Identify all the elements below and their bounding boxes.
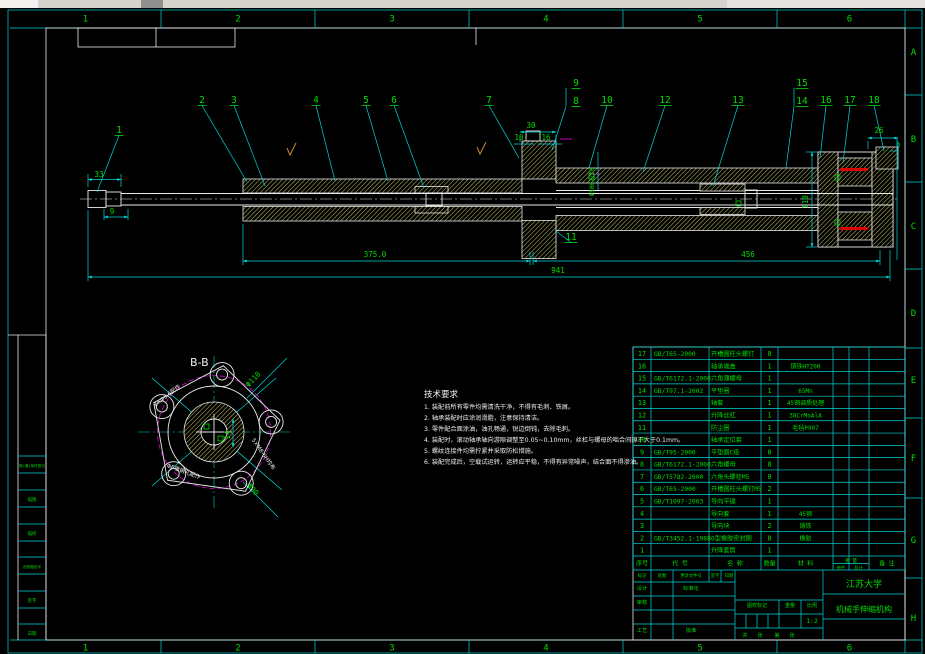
balloon-leader (316, 106, 335, 182)
balloon-leader (820, 106, 826, 159)
header-cell: 序号 (636, 560, 648, 568)
cell-part-name: 轴套 (711, 399, 723, 407)
dimension-text: 10 (514, 133, 524, 142)
balloon-leader (489, 106, 519, 159)
coupling-detail (426, 193, 442, 206)
sheet-border (8, 10, 922, 653)
balloon-number: 1 (116, 125, 122, 136)
role-label: 标准化 (683, 584, 700, 592)
cell-qty: 1 (767, 411, 771, 419)
cell-part-name: 导向套 (711, 510, 730, 518)
tech-note-line: 6. 装配完成后，空载试运转，运转应平稳，不得有异常噪声，结合面不得渗油。 (424, 458, 642, 466)
ruler-zone-number-top: 4 (543, 15, 548, 25)
balloon-number: 9 (573, 78, 579, 89)
assembly-main-view (80, 131, 898, 260)
seal-ring-top (840, 168, 868, 171)
tube1-wall-bottom (243, 207, 522, 222)
cell-standard-code: GB/T65-2000 (654, 486, 696, 493)
cell-part-name: 轴承定位套 (711, 436, 742, 444)
balloon-leader (552, 107, 566, 151)
cell-standard-code: GB/T6172.1-2000 (654, 462, 711, 469)
balloon-number: 12 (659, 95, 670, 106)
cell-part-no: 7 (640, 473, 644, 481)
balloon-leader (843, 106, 850, 164)
cell-part-no: 1 (640, 547, 644, 555)
balloon-leader (786, 107, 794, 169)
dimension-text: 16 (541, 133, 551, 142)
stamp-header: 重量 (785, 602, 795, 609)
ruler-zone-number-bottom: 3 (389, 644, 394, 654)
section-label: B-B (190, 356, 209, 369)
dimension-text: 30 (526, 121, 536, 130)
header-weight-sub: 总计 (854, 564, 862, 571)
balloon-number: 5 (363, 95, 369, 106)
dimension-text: Φ50H7/f6 (589, 167, 596, 196)
cell-qty: 8 (767, 448, 771, 456)
role-label: 工艺 (637, 627, 648, 634)
cell-part-no: 11 (638, 424, 646, 432)
cell-part-name: 导向块 (711, 522, 730, 530)
header-weight: 重 量 (845, 557, 857, 564)
cell-material: 橡胶 (799, 534, 811, 542)
cell-part-no: 6 (640, 485, 644, 493)
revision-header: 处数 (658, 572, 667, 579)
cell-part-name: 平垫圈 (711, 387, 730, 395)
flange-upper (522, 141, 556, 179)
role-label: 审核 (637, 598, 648, 606)
cell-material: 铸铁HT200 (790, 362, 820, 370)
cell-part-name: 开槽圆柱头螺钉M5 (711, 485, 762, 493)
dimension-text: 33 (94, 170, 103, 179)
cell-part-name: 六角薄螺母 (711, 375, 742, 383)
cell-qty: 8 (767, 461, 771, 469)
sheet-label: 张 (757, 632, 762, 639)
nut-top (415, 187, 448, 194)
revision-header: 标记 (638, 572, 647, 579)
cell-standard-code: GB/T5782-2000 (654, 474, 703, 481)
header-cell: 材 料 (798, 560, 814, 568)
notes-title: 技术要求 (424, 389, 459, 400)
cell-qty: 1 (767, 510, 771, 518)
balloon-number: 7 (486, 95, 492, 106)
cell-qty: 1 (767, 362, 771, 370)
balloon-number: 10 (601, 95, 613, 106)
cell-part-no: 2 (640, 534, 644, 542)
bolt-hole (266, 416, 277, 427)
ruler-zone-letter: G (911, 536, 916, 546)
cell-material: 65Mn (798, 388, 813, 395)
drawing-sheet: B-B 技术要求 江苏大学 机械手伸缩机构 1:2 123456123456AB… (0, 0, 925, 654)
header-cell: 数量 (763, 560, 775, 568)
cell-material: 38CrMoAlA (789, 412, 822, 419)
ruler-zone-letter: B (911, 135, 916, 145)
dimension-text: 26 (874, 126, 884, 135)
cell-qty: 1 (767, 498, 771, 506)
dimension-text: 9 (110, 207, 115, 216)
balloon-leader (394, 106, 424, 189)
cad-application-canvas: B-B 技术要求 江苏大学 机械手伸缩机构 1:2 123456123456AB… (0, 0, 925, 654)
ruler-zone-letter: D (911, 309, 916, 319)
tech-note-line: 5. 螺纹连接件均需拧紧并采取防松措施。 (424, 447, 537, 455)
cell-part-no: 4 (640, 510, 644, 518)
cell-qty: 2 (767, 522, 771, 530)
outer-border (8, 10, 922, 653)
ruler-zone-letter: E (911, 376, 916, 386)
sheet-label: 张 (789, 632, 794, 639)
ruler-zone-letter: H (911, 614, 916, 624)
cell-part-no: 5 (640, 498, 644, 506)
ruler-zone-number-top: 2 (235, 15, 240, 25)
balloon-number: 17 (844, 95, 855, 106)
cell-standard-code: GB/T1097-2003 (654, 499, 703, 506)
tech-note-line: 3. 零件配合面涂油，油孔畅通，锐边倒钝，去除毛刺。 (424, 425, 574, 433)
cell-part-no: 3 (640, 522, 644, 530)
revision-header: 日期 (725, 573, 734, 579)
surface-finish-icon (477, 142, 486, 154)
section-view-bb (138, 356, 290, 508)
balloon-number: 11 (565, 232, 577, 243)
balloon-number: 6 (391, 95, 397, 106)
cell-part-no: 14 (638, 387, 646, 395)
balloon-number: 2 (199, 95, 205, 106)
balloon-leader (366, 106, 388, 182)
binding-strip-label: 签字 (28, 597, 37, 604)
binding-strip-label: 借(通)用件登记 (19, 463, 45, 468)
ruler-zone-letter: F (911, 454, 916, 464)
ruler-zone-number-top: 1 (83, 15, 88, 25)
cell-qty: 1 (767, 547, 771, 555)
stamp-header: 图样标记 (747, 602, 767, 609)
inner-nut-bottom (700, 208, 745, 215)
cell-part-name: 开槽圆柱头螺钉 (711, 350, 754, 358)
surface-finish-icon (287, 143, 296, 155)
ruler-zone-number-top: 3 (389, 15, 394, 25)
drawing-title: 机械手伸缩机构 (836, 604, 892, 614)
balloon-number: 13 (732, 95, 743, 106)
role-label: 设计 (637, 584, 648, 592)
cell-part-no: 15 (638, 375, 646, 383)
binding-strip-label: 描校 (28, 530, 37, 537)
cell-part-no: 9 (640, 448, 644, 456)
cell-part-name: 导向平键 (711, 498, 736, 506)
end-cap-body-bottom (838, 212, 872, 240)
cell-part-name: 防尘圈 (711, 424, 730, 432)
dimension-text: 7 (897, 143, 901, 150)
header-weight-sub: 单件 (837, 564, 845, 571)
header-cell: 名 称 (727, 560, 743, 568)
inner-frame (46, 28, 905, 640)
ruler-zone-letter: A (911, 48, 917, 58)
cell-standard-code: GB/T97.1-2002 (654, 388, 703, 395)
cell-qty: 8 (767, 473, 771, 481)
ruler-zone-number-bottom: 1 (83, 644, 88, 654)
binding-strip-label: 旧底图总号 (23, 564, 41, 569)
cell-part-no: 13 (638, 399, 646, 407)
dimension-text: 375.0 (364, 250, 387, 259)
seal-ring-bottom (840, 227, 868, 230)
nut-bottom (415, 207, 448, 214)
tube1-wall-top (243, 179, 522, 193)
flange-lower (522, 221, 556, 259)
cell-part-no: 17 (638, 350, 646, 358)
cell-part-name: O型橡胶密封圈 (711, 534, 752, 542)
end-cap-plate (818, 152, 838, 247)
ruler-zone-number-top: 6 (847, 15, 852, 25)
cell-qty: 1 (767, 375, 771, 383)
cell-qty: 1 (767, 387, 771, 395)
ruler-zone-number-bottom: 4 (543, 644, 548, 654)
balloon-number: 8 (573, 96, 579, 107)
cell-part-no: 16 (638, 362, 646, 370)
cell-part-name: 六角螺母 (711, 461, 736, 469)
binding-strip-label: 描图 (28, 496, 37, 503)
balloon-number: 14 (796, 96, 808, 107)
role-label: 批准 (686, 626, 697, 634)
balloon-leader (202, 106, 247, 183)
tech-note-line: 2. 轴承装配时应涂润滑脂，注意保持清洁。 (424, 414, 543, 422)
cell-part-no: 10 (638, 436, 646, 444)
balloon-number: 4 (313, 95, 319, 106)
dimension-text: 14 (223, 430, 232, 440)
reference-box (78, 28, 235, 47)
tech-note-line: 1. 装配前所有零件均需清洗干净，不得有毛刺、铁屑。 (424, 403, 574, 411)
balloon-number: 3 (231, 95, 237, 106)
header-cell: 代 号 (672, 560, 688, 568)
dimension-text: 941 (551, 266, 565, 275)
ruler-zone-number-bottom: 5 (697, 644, 702, 654)
cell-qty: 1 (767, 399, 771, 407)
cell-qty: 1 (767, 436, 771, 444)
dimension-text: 456 (741, 250, 755, 259)
cell-part-no: 12 (638, 411, 646, 419)
balloon-leader (97, 136, 119, 193)
binding-strip-label: 日期 (28, 631, 37, 637)
sheet-label: 共 (742, 632, 747, 639)
cell-part-name: 升降套筒 (711, 547, 736, 555)
cell-material: 45钢调质处理 (787, 399, 824, 407)
cell-part-name: 平垫圈C级 (711, 448, 739, 456)
tube2-wall-bottom (556, 216, 818, 231)
cell-standard-code: GB/T95-2000 (654, 449, 696, 456)
cell-material: 铸铁 (799, 522, 811, 530)
balloon-number: 18 (868, 95, 880, 106)
cell-material: 毛毡P907 (792, 424, 819, 432)
cell-qty: 8 (767, 534, 771, 542)
cell-material: 45钢 (799, 510, 812, 518)
inner-nut-top (700, 184, 745, 191)
revision-header: 签字 (711, 572, 720, 579)
cell-standard-code: GB/T3452.1-1988 (654, 535, 711, 542)
cell-qty: 1 (767, 424, 771, 432)
dimension-text: Φ110 (244, 369, 263, 389)
ruler-zone-letter: C (911, 222, 916, 232)
cell-part-name: 六角头螺栓M5 (711, 473, 750, 481)
header-cell: 备 注 (879, 560, 895, 568)
cell-standard-code: GB/T6172.1-2000 (654, 376, 711, 383)
balloon-number: 15 (796, 78, 807, 89)
dimension-text: 110 (801, 195, 810, 209)
ruler-zone-number-bottom: 6 (847, 644, 852, 654)
sheet-label: 第 (774, 632, 779, 639)
balloon-leader (234, 106, 265, 187)
cell-part-name: 升降丝杠 (711, 411, 736, 419)
flange-boss (526, 131, 540, 141)
cap-lip-stub (876, 147, 898, 169)
revision-header: 更改文件号 (680, 572, 701, 579)
cell-part-name: 轴承端盖 (711, 362, 736, 370)
balloon-number: 16 (820, 95, 832, 106)
cell-standard-code: GB/T65-2000 (654, 351, 696, 358)
ruler-zone-number-bottom: 2 (235, 644, 240, 654)
generated-annotations: 123456123456ABCDEFGH12345678910111213141… (18, 10, 922, 654)
scale-value: 1:2 (806, 617, 818, 625)
balloon-leader (643, 106, 665, 173)
bolt-hole (217, 369, 228, 380)
cell-qty: 2 (767, 485, 771, 493)
cell-part-no: 8 (640, 461, 644, 469)
university-name: 江苏大学 (846, 578, 882, 590)
ruler-zone-number-top: 5 (697, 15, 702, 25)
cell-qty: 8 (767, 350, 771, 358)
stamp-header: 比例 (807, 602, 817, 609)
